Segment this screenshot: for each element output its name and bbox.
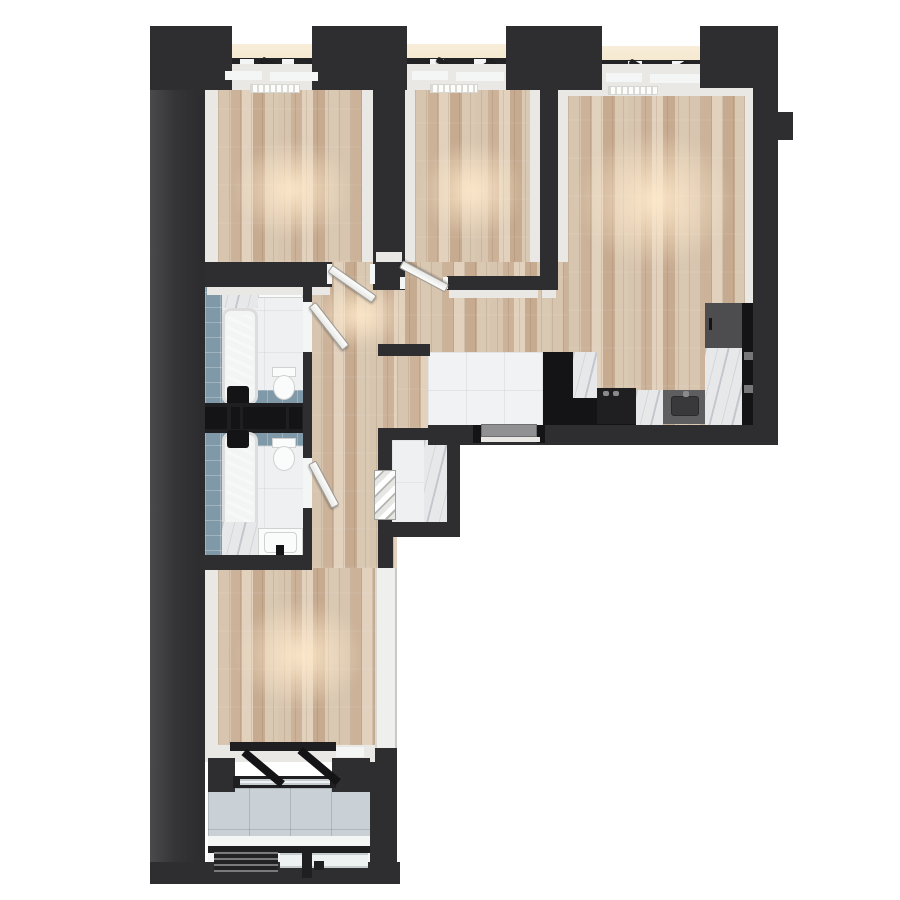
wall-vestibule-top	[378, 344, 430, 356]
kitchen-cabinet-handle	[709, 318, 712, 330]
floor-plan	[0, 0, 900, 900]
entry-door-threshold	[481, 437, 540, 442]
kitchen-counter-marble-top	[573, 352, 597, 400]
wall-bedroom2-right	[540, 58, 558, 290]
storage-accordion-door	[374, 470, 396, 520]
laundry-niche-2	[231, 407, 240, 429]
outer-wall-left	[150, 26, 205, 882]
balcony-stone-floor	[208, 788, 370, 838]
entry-door-jamb-left	[473, 425, 481, 443]
laundry-niche-4	[289, 407, 302, 429]
wall-bedroom2-bottom-face	[449, 290, 538, 298]
bedroom3-balcony-sill	[336, 747, 364, 757]
entry-door-leaf	[481, 424, 537, 437]
living-room-light-glow	[575, 130, 735, 270]
windowsill-living-b	[650, 74, 700, 83]
balcony-glazing-glass	[280, 853, 368, 868]
bedroom1-light-glow	[232, 140, 352, 240]
vestibule-tile-floor	[428, 352, 543, 425]
wall-bathroom2-bottom	[200, 555, 312, 570]
kitchen-counter-marble-mid	[636, 390, 663, 425]
wall-stub-cap	[376, 252, 402, 262]
balcony-glazing-tee	[314, 861, 324, 870]
radiator-living-room	[608, 86, 658, 95]
kitchen-sink-basin	[671, 396, 699, 416]
bathroom2-marble-counter	[222, 522, 258, 558]
wall-bedroom1-bottom	[205, 262, 332, 287]
bedroom1-door-jamb-b	[370, 264, 375, 284]
windowsill-bedroom1-a	[225, 71, 262, 80]
outer-wall-right-bulge	[775, 112, 793, 140]
wall-storage-right	[447, 428, 460, 537]
kitchen-cooktop-knob-1	[603, 391, 609, 396]
bedroom3-right-wall-light	[375, 568, 397, 748]
laundry-niche-3	[243, 407, 286, 429]
bedroom2-door-jamb-a	[400, 277, 405, 289]
wall-pillar-top-left	[150, 26, 232, 90]
kitchen-sink-faucet	[683, 391, 689, 397]
laundry-niche-1	[204, 407, 227, 429]
storage-room-marble-strip	[424, 440, 447, 522]
balcony-railing-grille	[214, 851, 278, 872]
windowsill-bedroom1-b	[270, 72, 318, 81]
bedroom2-light-glow	[420, 140, 525, 240]
balcony-glazing-post	[302, 846, 312, 878]
radiator-bedroom2	[430, 84, 478, 93]
bathroom2-toilet-bowl	[273, 446, 295, 471]
windowsill-bedroom2-b	[456, 72, 504, 81]
windowsill-bedroom2-a	[412, 71, 448, 80]
windowsill-living-a	[606, 73, 642, 82]
wall-bedroom2-bottom	[447, 276, 540, 290]
bathroom2-tub-faucet	[227, 430, 249, 448]
outer-wall-right	[753, 26, 778, 445]
bathroom2-bathtub-water	[227, 440, 253, 523]
balcony-door-threshold-glass	[240, 779, 330, 785]
wall-balcony-door-right	[332, 758, 370, 792]
bedroom3-light-glow	[235, 600, 365, 710]
kitchen-counter-black-left	[543, 352, 573, 425]
kitchen-cooktop-knob-2	[613, 391, 619, 396]
bathroom2-blue-wall-left	[205, 430, 222, 558]
kitchen-marble-column	[705, 348, 742, 425]
bathroom1-toilet-bowl	[273, 375, 295, 400]
wall-balcony-door-left	[208, 758, 235, 792]
hallway-patch-wood-floor	[397, 354, 428, 428]
wall-bedroom2-right-cap	[542, 290, 556, 298]
radiator-bedroom1	[250, 84, 300, 93]
